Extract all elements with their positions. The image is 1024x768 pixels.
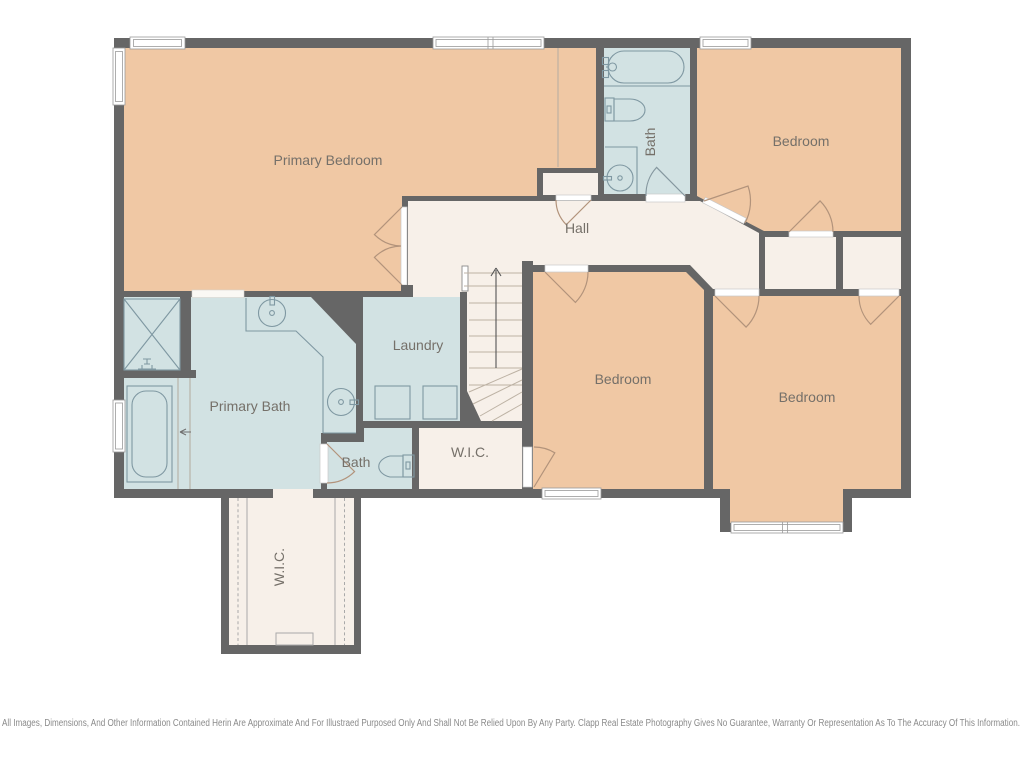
svg-text:Bath: Bath bbox=[642, 128, 658, 157]
svg-text:All Images, Dimensions, And Ot: All Images, Dimensions, And Other Inform… bbox=[2, 718, 1020, 729]
svg-text:Bedroom: Bedroom bbox=[595, 371, 652, 387]
svg-text:Hall: Hall bbox=[565, 220, 589, 236]
svg-text:Bedroom: Bedroom bbox=[779, 389, 836, 405]
svg-text:W.I.C.: W.I.C. bbox=[271, 548, 287, 586]
svg-text:Bedroom: Bedroom bbox=[773, 133, 830, 149]
svg-text:Bath: Bath bbox=[342, 454, 371, 470]
svg-text:Primary Bath: Primary Bath bbox=[210, 398, 291, 414]
svg-text:Laundry: Laundry bbox=[393, 337, 444, 353]
svg-text:Primary Bedroom: Primary Bedroom bbox=[274, 152, 383, 168]
svg-text:W.I.C.: W.I.C. bbox=[451, 444, 489, 460]
